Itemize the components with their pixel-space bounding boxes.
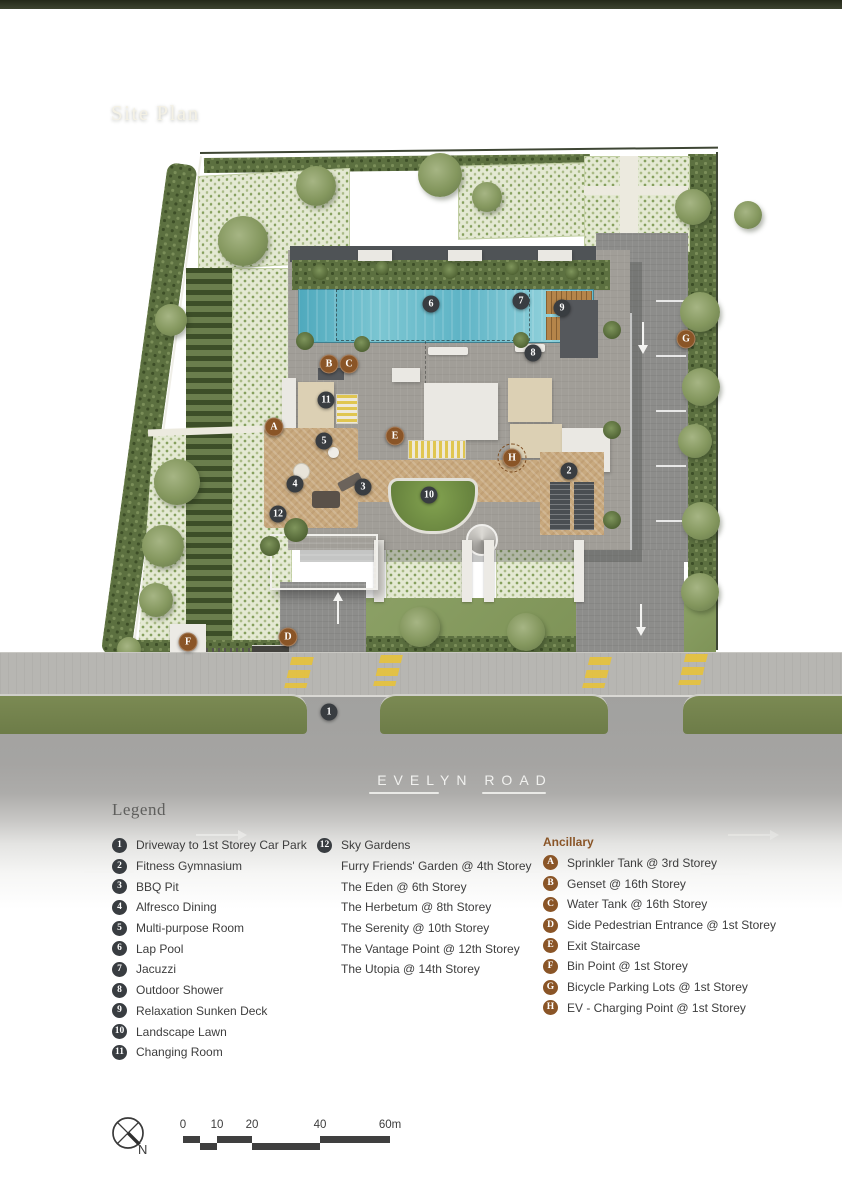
legend-subitem-label: The Eden @ 6th Storey <box>341 880 467 894</box>
legend-badge: 12 <box>317 838 332 853</box>
parking-bay-line <box>656 465 686 467</box>
legend-column-2: 12Sky GardensFurry Friends' Garden @ 4th… <box>317 835 532 980</box>
scale-segment <box>320 1136 390 1143</box>
legend-item-label: BBQ Pit <box>136 880 179 894</box>
road-lane-dash <box>482 792 546 794</box>
site-plan-page: Site Plan <box>0 0 842 1200</box>
planting-rows-left <box>186 268 232 646</box>
legend-badge: 8 <box>112 983 127 998</box>
main-white-roof <box>424 383 498 440</box>
legend-badge: 9 <box>112 1003 127 1018</box>
legend-item: 11Changing Room <box>112 1042 307 1063</box>
legend-item-label: EV - Charging Point @ 1st Storey <box>567 1001 746 1015</box>
legend-badge: 10 <box>112 1024 127 1039</box>
site-marker-A: A <box>265 418 284 437</box>
site-marker-12: 12 <box>270 506 287 523</box>
legend-subitem: Furry Friends' Garden @ 4th Storey <box>317 856 532 877</box>
site-marker-G: G <box>677 330 696 349</box>
site-marker-C: C <box>340 355 359 374</box>
legend-item-label: Bicycle Parking Lots @ 1st Storey <box>567 980 748 994</box>
bush <box>375 261 389 275</box>
legend-subitem: The Vantage Point @ 12th Storey <box>317 938 532 959</box>
legend-badge: H <box>543 1000 558 1015</box>
bush <box>603 511 621 529</box>
site-marker-6: 6 <box>423 296 440 313</box>
dining-table <box>312 491 340 508</box>
beige-roof-1 <box>508 378 552 422</box>
scale-segment <box>183 1136 200 1143</box>
bush <box>312 264 328 280</box>
legend-badge: 6 <box>112 941 127 956</box>
legend-item: BGenset @ 16th Storey <box>543 873 776 894</box>
driveway-arrow <box>640 604 642 628</box>
roof-strip-west <box>282 378 296 430</box>
tree <box>296 166 336 206</box>
legend-subitem-label: Furry Friends' Garden @ 4th Storey <box>341 859 532 873</box>
legend-item-label: Lap Pool <box>136 942 183 956</box>
driveway-main-entry <box>280 582 366 658</box>
legend-badge: B <box>543 876 558 891</box>
small-roof-1 <box>392 368 420 382</box>
scale-tick-label: 40 <box>314 1119 327 1131</box>
legend-badge: G <box>543 980 558 995</box>
north-label: N <box>138 1142 147 1157</box>
verge-middle <box>380 694 608 734</box>
trellis-bed-bottom2 <box>496 546 576 604</box>
skylight-3 <box>538 250 572 261</box>
legend-subitem-label: The Herbetum @ 8th Storey <box>341 900 491 914</box>
legend-item: 4Alfresco Dining <box>112 897 307 918</box>
bush <box>505 261 519 275</box>
legend-item: 12Sky Gardens <box>317 835 532 856</box>
site-marker-2: 2 <box>561 463 578 480</box>
tree <box>682 502 720 540</box>
legend-subitem: The Serenity @ 10th Storey <box>317 918 532 939</box>
verge-left <box>0 694 307 734</box>
tree <box>154 459 200 505</box>
driveway-arrow <box>337 600 339 624</box>
tree <box>680 292 720 332</box>
legend-item-label: Alfresco Dining <box>136 900 217 914</box>
site-marker-5: 5 <box>316 433 333 450</box>
site-marker-10: 10 <box>421 487 438 504</box>
site-marker-B: B <box>320 355 339 374</box>
legend-item: 6Lap Pool <box>112 938 307 959</box>
ancillary-heading: Ancillary <box>543 831 776 853</box>
legend-item: CWater Tank @ 16th Storey <box>543 894 776 915</box>
legend-subitem-label: The Utopia @ 14th Storey <box>341 962 480 976</box>
tree <box>472 182 502 212</box>
legend-item-label: Relaxation Sunken Deck <box>136 1004 267 1018</box>
verge-right <box>683 694 842 734</box>
bush <box>354 336 370 352</box>
legend-item: 3BBQ Pit <box>112 876 307 897</box>
planter-box <box>462 540 472 602</box>
legend-item: FBin Point @ 1st Storey <box>543 956 776 977</box>
bush <box>442 263 458 279</box>
legend-item-label: Side Pedestrian Entrance @ 1st Storey <box>567 918 776 932</box>
road-lane-dash <box>369 792 439 794</box>
scale-segment <box>217 1136 252 1143</box>
legend-item-label: Sprinkler Tank @ 3rd Storey <box>567 856 717 870</box>
legend-item: ASprinkler Tank @ 3rd Storey <box>543 853 776 874</box>
driveway-right-exit <box>576 550 684 658</box>
legend-item-label: Driveway to 1st Storey Car Park <box>136 838 307 852</box>
parking-bay-line <box>656 355 686 357</box>
legend-badge: E <box>543 938 558 953</box>
legend-item: EExit Staircase <box>543 935 776 956</box>
legend-item-label: Exit Staircase <box>567 939 640 953</box>
driveway-arrow <box>642 322 644 346</box>
legend-badge: C <box>543 897 558 912</box>
legend-item: 9Relaxation Sunken Deck <box>112 1001 307 1022</box>
legend-column-ancillary: Ancillary ASprinkler Tank @ 3rd StoreyBG… <box>543 831 776 1018</box>
tree <box>142 525 184 567</box>
site-marker-8: 8 <box>525 345 542 362</box>
tree <box>675 189 711 225</box>
tree <box>678 424 712 458</box>
pool-bench-1 <box>428 347 468 355</box>
legend-subitem: The Eden @ 6th Storey <box>317 876 532 897</box>
legend-badge: 2 <box>112 859 127 874</box>
legend-badge: 4 <box>112 900 127 915</box>
bush <box>296 332 314 350</box>
stairs-west <box>336 394 358 424</box>
parking-bay-line <box>656 410 686 412</box>
legend-badge: 7 <box>112 962 127 977</box>
site-marker-7: 7 <box>513 293 530 310</box>
legend-item-label: Landscape Lawn <box>136 1025 227 1039</box>
sidewalk <box>0 652 842 697</box>
legend-item: 2Fitness Gymnasium <box>112 856 307 877</box>
tree <box>734 201 762 229</box>
site-marker-D: D <box>279 628 298 647</box>
legend-badge: D <box>543 918 558 933</box>
legend-item: 5Multi-purpose Room <box>112 918 307 939</box>
tree <box>155 304 187 336</box>
scale-tick-label: 0 <box>180 1119 186 1131</box>
legend-item-label: Outdoor Shower <box>136 983 223 997</box>
legend-item: 8Outdoor Shower <box>112 980 307 1001</box>
site-marker-F: F <box>179 633 198 652</box>
site-marker-11: 11 <box>318 392 335 409</box>
legend-subitem: The Herbetum @ 8th Storey <box>317 897 532 918</box>
legend-badge: A <box>543 855 558 870</box>
bush <box>603 321 621 339</box>
legend-item: 1Driveway to 1st Storey Car Park <box>112 835 307 856</box>
legend-badge: 5 <box>112 921 127 936</box>
tree <box>681 573 719 611</box>
site-marker-9: 9 <box>554 300 571 317</box>
legend-badge: F <box>543 959 558 974</box>
planter-box <box>484 540 494 602</box>
legend-item-label: Jacuzzi <box>136 962 176 976</box>
site-marker-1: 1 <box>321 704 338 721</box>
legend-subitem: The Utopia @ 14th Storey <box>317 959 532 980</box>
legend-badge: 1 <box>112 838 127 853</box>
legend-subitem-label: The Vantage Point @ 12th Storey <box>341 942 520 956</box>
scale-tick-label: 60m <box>379 1119 401 1131</box>
bush <box>260 536 280 556</box>
legend-item-label: Changing Room <box>136 1045 223 1059</box>
legend-item-label: Water Tank @ 16th Storey <box>567 897 707 911</box>
entrance-canopy <box>270 534 378 590</box>
planter-box <box>574 540 584 602</box>
site-marker-3: 3 <box>355 479 372 496</box>
bush <box>565 266 579 280</box>
scale-segment <box>252 1143 320 1150</box>
tree <box>682 368 720 406</box>
legend-item-label: Multi-purpose Room <box>136 921 244 935</box>
tree <box>218 216 268 266</box>
boundary-top <box>200 147 718 154</box>
trellis-bed-bottom1 <box>386 546 464 604</box>
legend-item-label: Fitness Gymnasium <box>136 859 242 873</box>
tree <box>139 583 173 617</box>
tree <box>400 607 440 647</box>
site-marker-H: H <box>503 449 522 468</box>
legend-item: HEV - Charging Point @ 1st Storey <box>543 997 776 1018</box>
bush <box>284 518 308 542</box>
gym-skylight-1 <box>550 482 570 530</box>
boundary-right <box>716 152 718 650</box>
legend-item: 10Landscape Lawn <box>112 1021 307 1042</box>
legend-item-label: Genset @ 16th Storey <box>567 877 686 891</box>
site-plan-graphic <box>0 0 842 700</box>
scale-tick-label: 10 <box>211 1119 224 1131</box>
skylight-2 <box>448 250 482 261</box>
round-table <box>328 447 339 458</box>
scale-tick-label: 20 <box>246 1119 259 1131</box>
stairs-central <box>408 440 466 459</box>
tree <box>418 153 462 197</box>
legend-item: 7Jacuzzi <box>112 959 307 980</box>
scale-segment <box>200 1143 217 1150</box>
gym-skylight-2 <box>574 482 594 530</box>
legend-column-1: 1Driveway to 1st Storey Car Park2Fitness… <box>112 835 307 1063</box>
bush <box>603 421 621 439</box>
legend-item-label: Bin Point @ 1st Storey <box>567 959 688 973</box>
legend-item: GBicycle Parking Lots @ 1st Storey <box>543 977 776 998</box>
legend-item: DSide Pedestrian Entrance @ 1st Storey <box>543 915 776 936</box>
skylight-1 <box>358 250 392 261</box>
legend-heading: Legend <box>112 800 166 820</box>
tree <box>507 613 545 651</box>
legend-item-label: Sky Gardens <box>341 838 410 852</box>
road-name-label: EVELYN ROAD <box>330 772 600 788</box>
legend-subitem-label: The Serenity @ 10th Storey <box>341 921 489 935</box>
legend-badge: 3 <box>112 879 127 894</box>
site-marker-4: 4 <box>287 476 304 493</box>
site-marker-E: E <box>386 427 405 446</box>
legend-badge: 11 <box>112 1045 127 1060</box>
